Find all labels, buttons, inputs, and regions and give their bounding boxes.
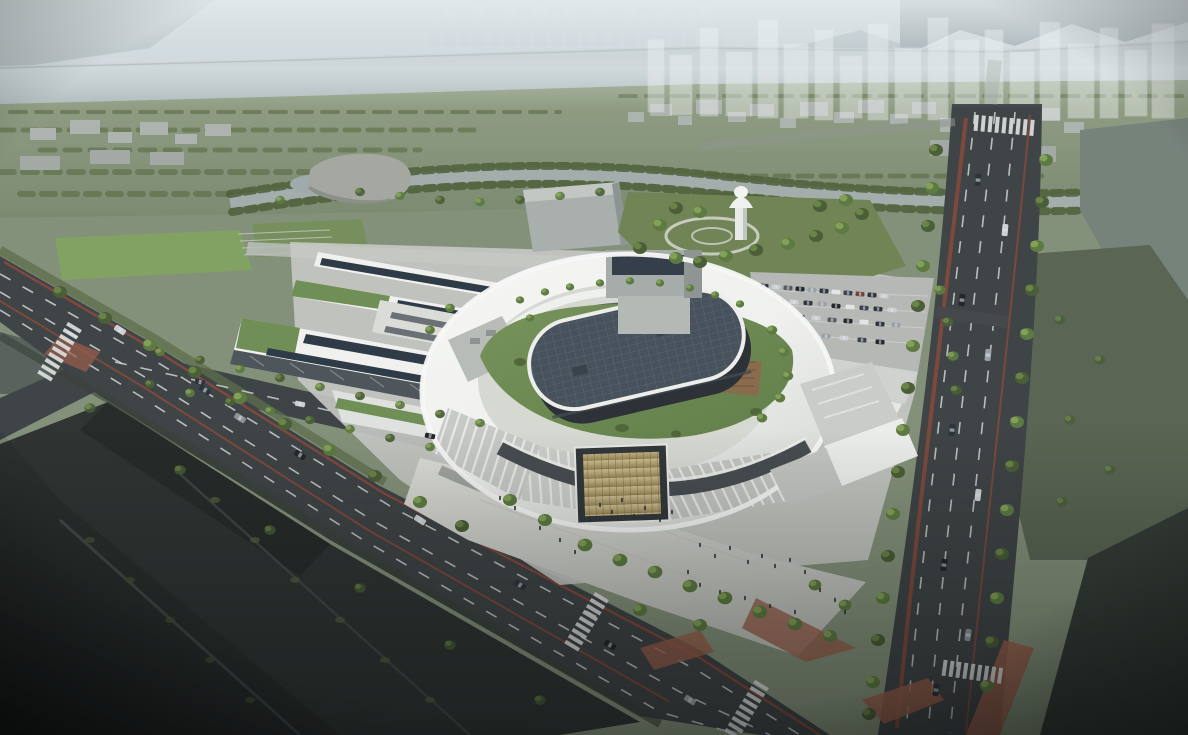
atmosphere bbox=[0, 0, 1188, 735]
rendering-canvas bbox=[0, 0, 1188, 735]
architectural-rendering bbox=[0, 0, 1188, 735]
